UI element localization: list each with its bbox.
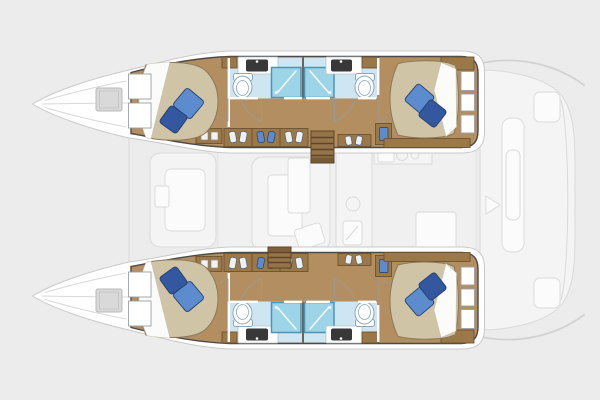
headboard-shelf <box>129 74 152 99</box>
headboard-shelf <box>129 103 152 128</box>
toilet <box>233 74 253 99</box>
saloon-seating-ghost <box>252 157 330 250</box>
aft-cabin-berth <box>390 61 459 138</box>
catamaran-floorplan <box>0 0 600 400</box>
faucet <box>340 60 343 63</box>
forward-cockpit-ghost <box>150 153 216 247</box>
headboard-shelf <box>461 94 475 111</box>
port-companionway-stairs <box>311 131 334 163</box>
shower-stall <box>272 68 302 98</box>
berth-base-trim <box>384 139 470 148</box>
wardrobe <box>224 129 308 147</box>
floorplan-stage <box>0 0 600 400</box>
cockpit-table-ghost <box>502 118 524 252</box>
cockpit-bench-ghost <box>534 92 560 122</box>
aft-deck-ghost <box>480 70 575 330</box>
wardrobe <box>338 135 371 147</box>
vanity-trim <box>362 57 378 68</box>
headboard-shelf <box>461 72 475 91</box>
deck-hatch <box>96 88 122 111</box>
toilet <box>355 74 375 99</box>
headboard-shelf <box>461 115 475 133</box>
starboard-companionway-stairs <box>268 247 291 268</box>
faucet <box>256 60 259 63</box>
aft-sunbed-ghost <box>416 212 456 252</box>
